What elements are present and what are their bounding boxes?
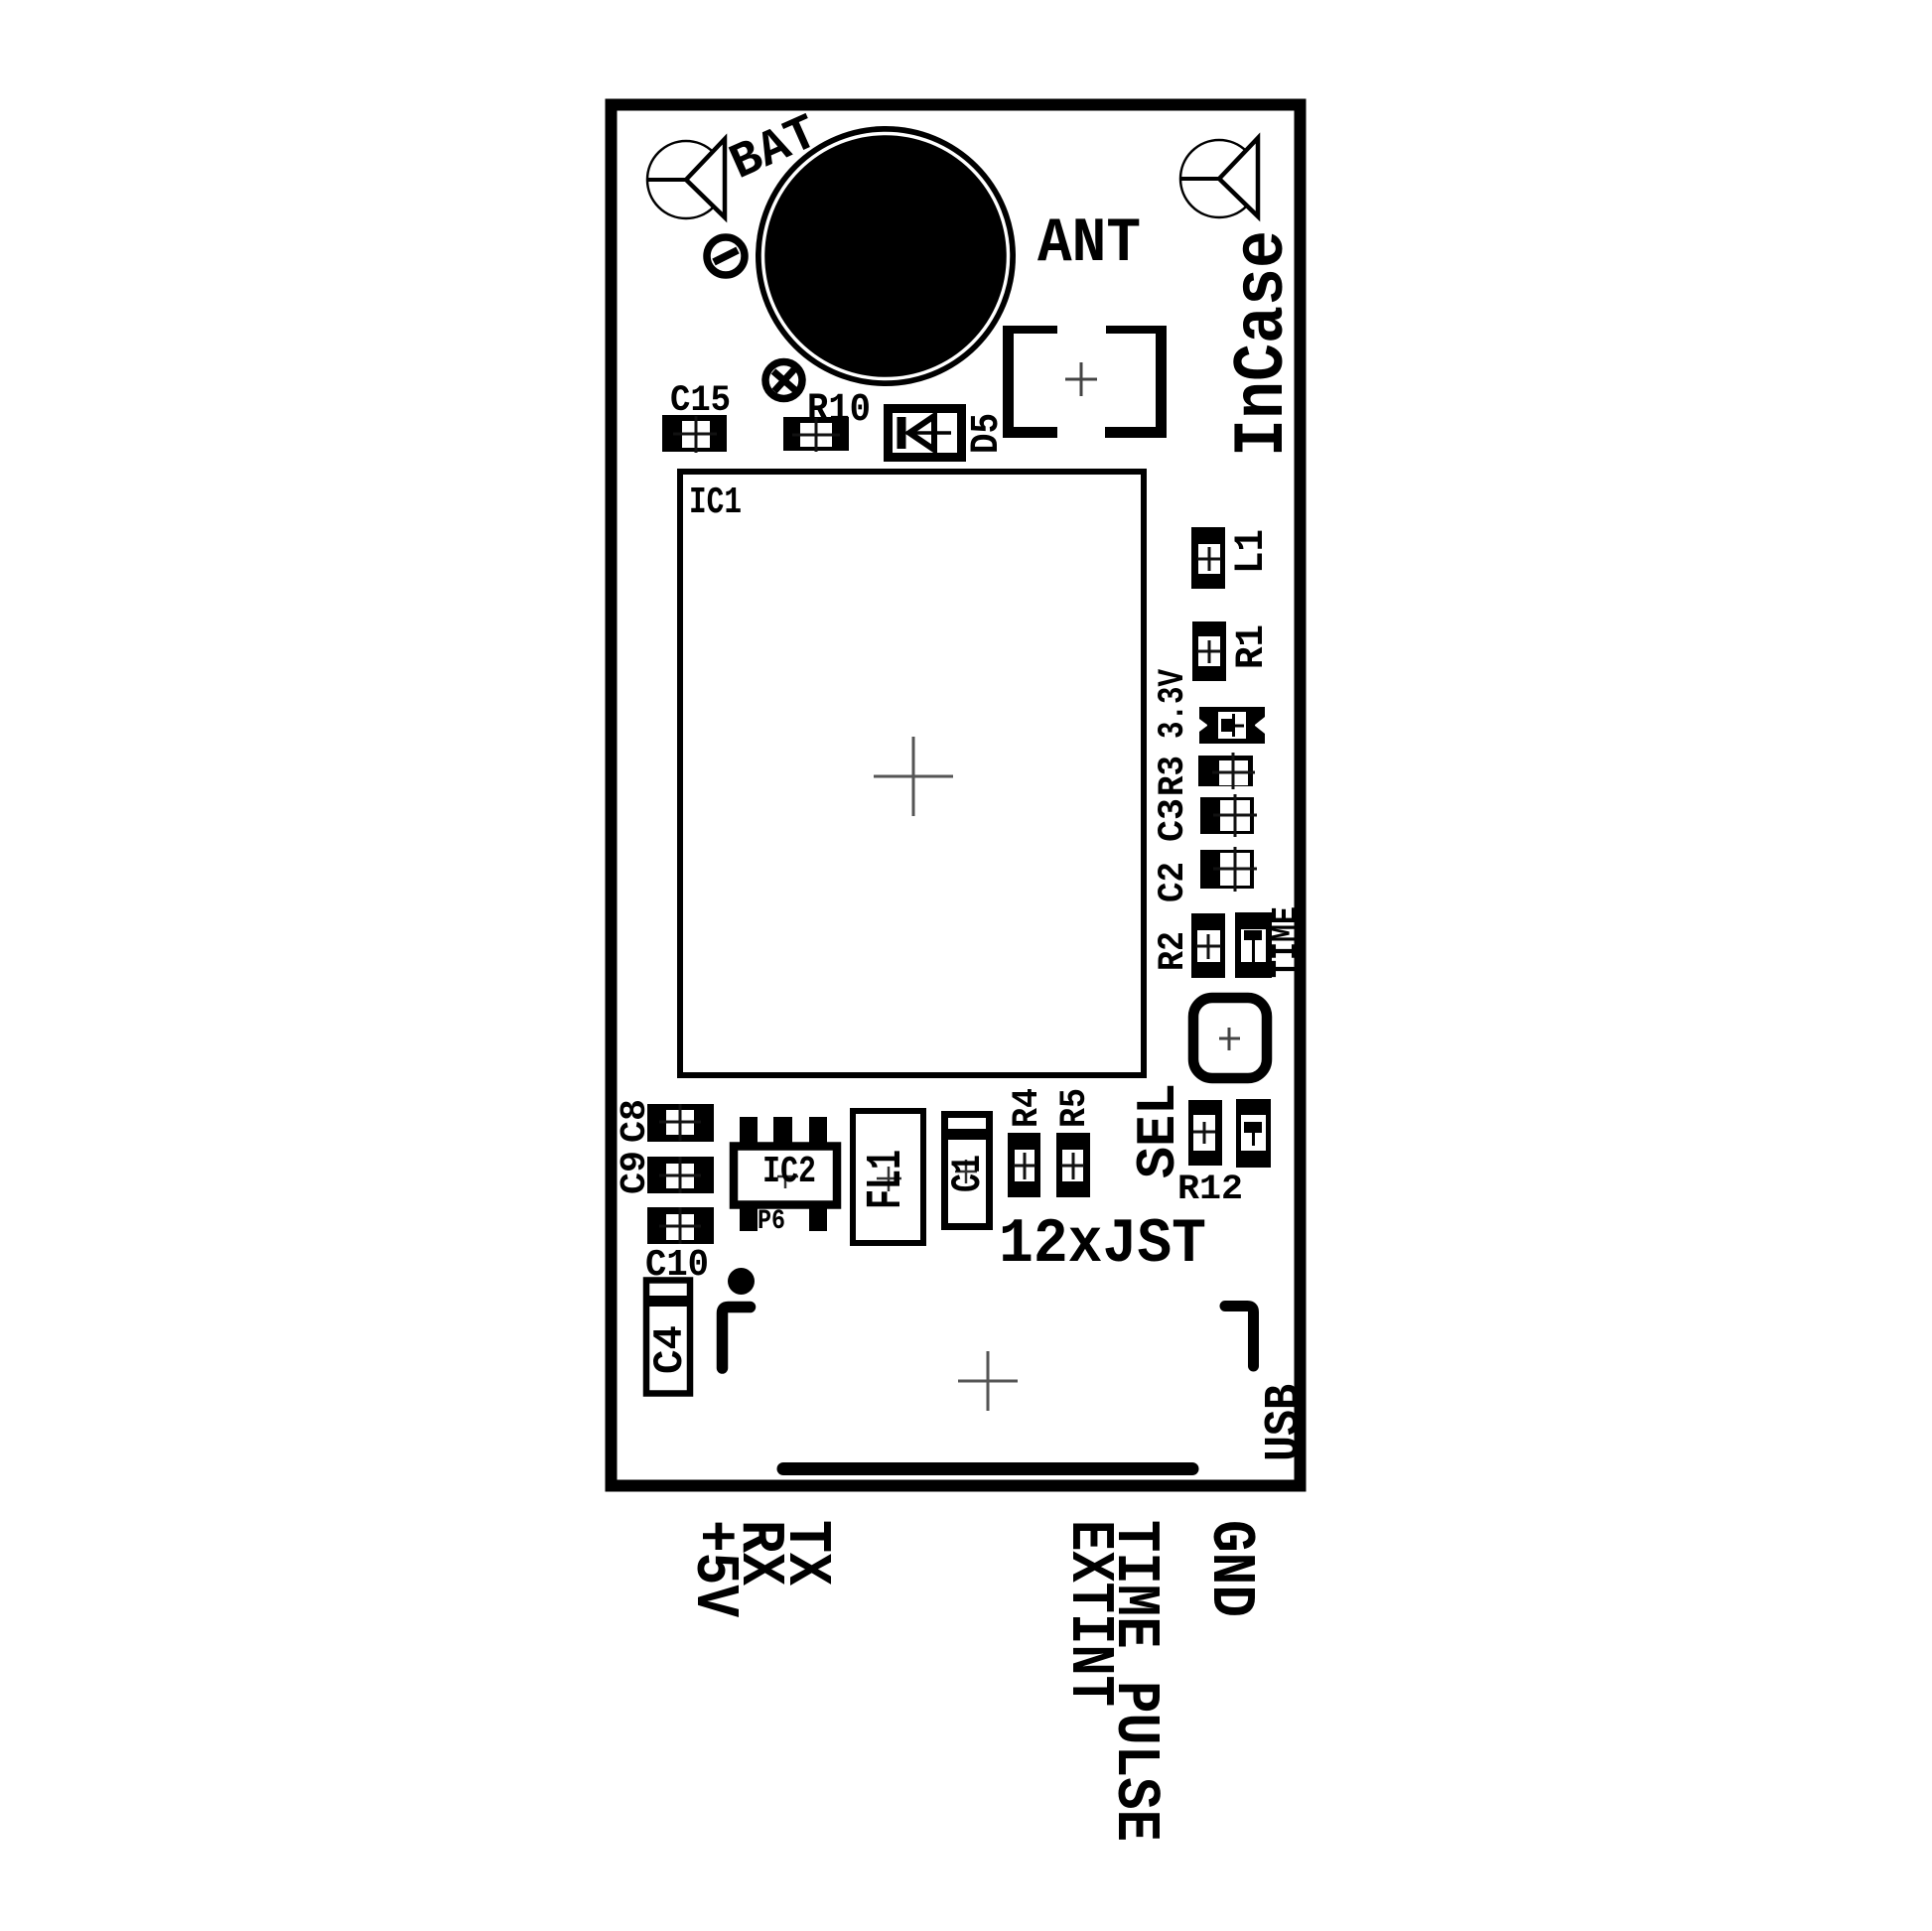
svg-text:C1: C1 — [944, 1155, 992, 1192]
svg-text:D5: D5 — [965, 413, 1010, 454]
svg-text:R3: R3 — [1153, 756, 1194, 796]
svg-text:C2: C2 — [1153, 862, 1194, 902]
svg-text:USB: USB — [1257, 1384, 1313, 1461]
svg-text:P6: P6 — [758, 1206, 785, 1237]
svg-text:+5V: +5V — [679, 1520, 750, 1618]
svg-text:R12: R12 — [1177, 1170, 1243, 1209]
svg-text:C3: C3 — [1153, 798, 1194, 842]
svg-text:L1: L1 — [1227, 529, 1275, 574]
svg-text:IC1: IC1 — [689, 482, 742, 524]
svg-text:GND: GND — [1195, 1520, 1266, 1617]
svg-text:SEL: SEL — [1127, 1083, 1190, 1178]
svg-text:R4: R4 — [1007, 1088, 1048, 1128]
svg-text:R1: R1 — [1230, 624, 1275, 669]
svg-text:12xJST: 12xJST — [999, 1209, 1206, 1280]
svg-text:IC2: IC2 — [762, 1151, 816, 1193]
svg-text:ANT: ANT — [1037, 208, 1141, 279]
svg-text:R5: R5 — [1054, 1088, 1096, 1128]
svg-text:FL1: FL1 — [859, 1150, 915, 1209]
svg-text:R2: R2 — [1153, 931, 1194, 971]
svg-text:3.3V: 3.3V — [1153, 668, 1194, 739]
svg-text:InCase: InCase — [1222, 230, 1304, 457]
svg-text:TIME PULSE: TIME PULSE — [1100, 1520, 1171, 1842]
svg-text:C4: C4 — [646, 1325, 694, 1374]
svg-text:TIME: TIME — [1266, 906, 1307, 978]
